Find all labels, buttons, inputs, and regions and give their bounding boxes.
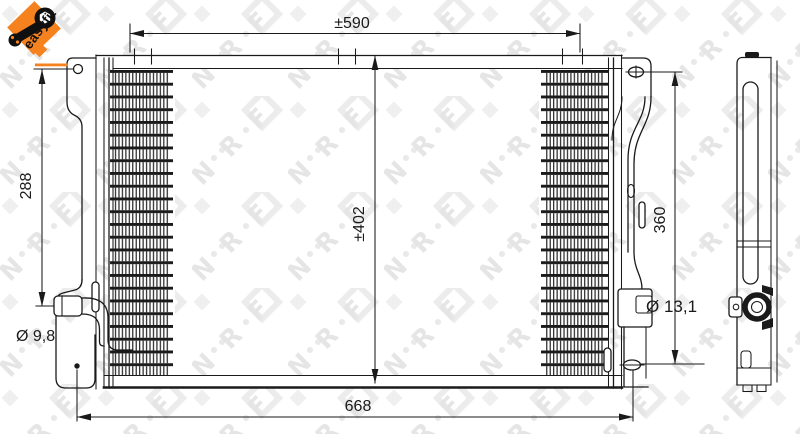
- right-clip-tab: [604, 348, 611, 372]
- label-port-large-diameter: Ø 13,1: [646, 297, 697, 316]
- label-port-small-diameter: Ø 9,8: [16, 328, 55, 345]
- core-right-fins: [539, 70, 610, 375]
- condenser-technical-drawing: N R F: [0, 0, 800, 434]
- left-clip-tab: [92, 282, 99, 312]
- dim-left-height-label: 288: [18, 173, 35, 200]
- dim-overall-width-label: 668: [345, 398, 372, 415]
- right-bracket-clip: [639, 202, 645, 228]
- port-ear-bracket: [729, 297, 742, 317]
- easyfit-logo-underline: [35, 64, 68, 67]
- bottom-header-tank: [96, 376, 622, 389]
- core-left-fins: [108, 70, 175, 375]
- port-ring: [745, 295, 769, 319]
- catalog-technical-drawing-page: N R F: [0, 0, 800, 434]
- dim-right-height-label: 360: [652, 207, 669, 234]
- left-bracket-bottom-hole: [74, 363, 79, 368]
- left-bracket-top-hole: [74, 65, 83, 74]
- side-view-top-cap: [745, 52, 759, 58]
- dim-core-height-label: ±402: [351, 206, 368, 242]
- top-header-tank: [96, 56, 622, 70]
- dim-core-width-label: ±590: [334, 15, 370, 32]
